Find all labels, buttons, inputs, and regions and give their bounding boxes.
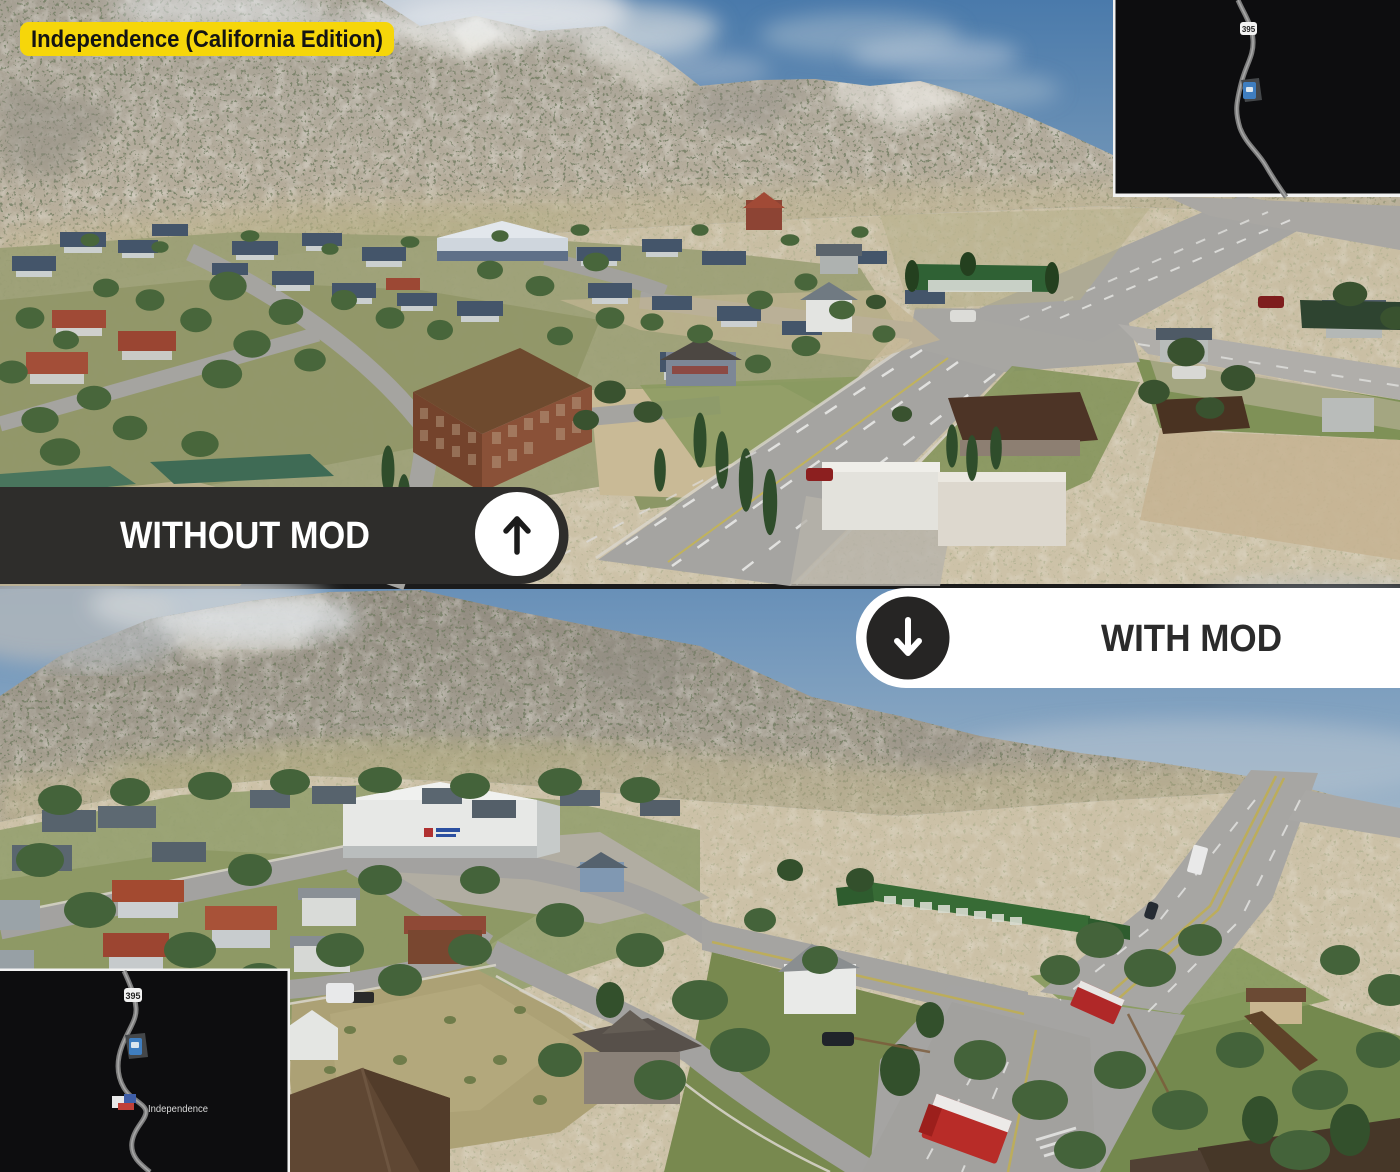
svg-text:Independence: Independence (148, 1104, 208, 1115)
svg-text:Independence (California Editi: Independence (California Edition) (31, 26, 383, 53)
svg-text:395: 395 (1242, 25, 1256, 34)
svg-text:WITH MOD: WITH MOD (1101, 618, 1282, 660)
svg-text:WITHOUT MOD: WITHOUT MOD (120, 515, 370, 557)
svg-text:395: 395 (125, 991, 140, 1001)
